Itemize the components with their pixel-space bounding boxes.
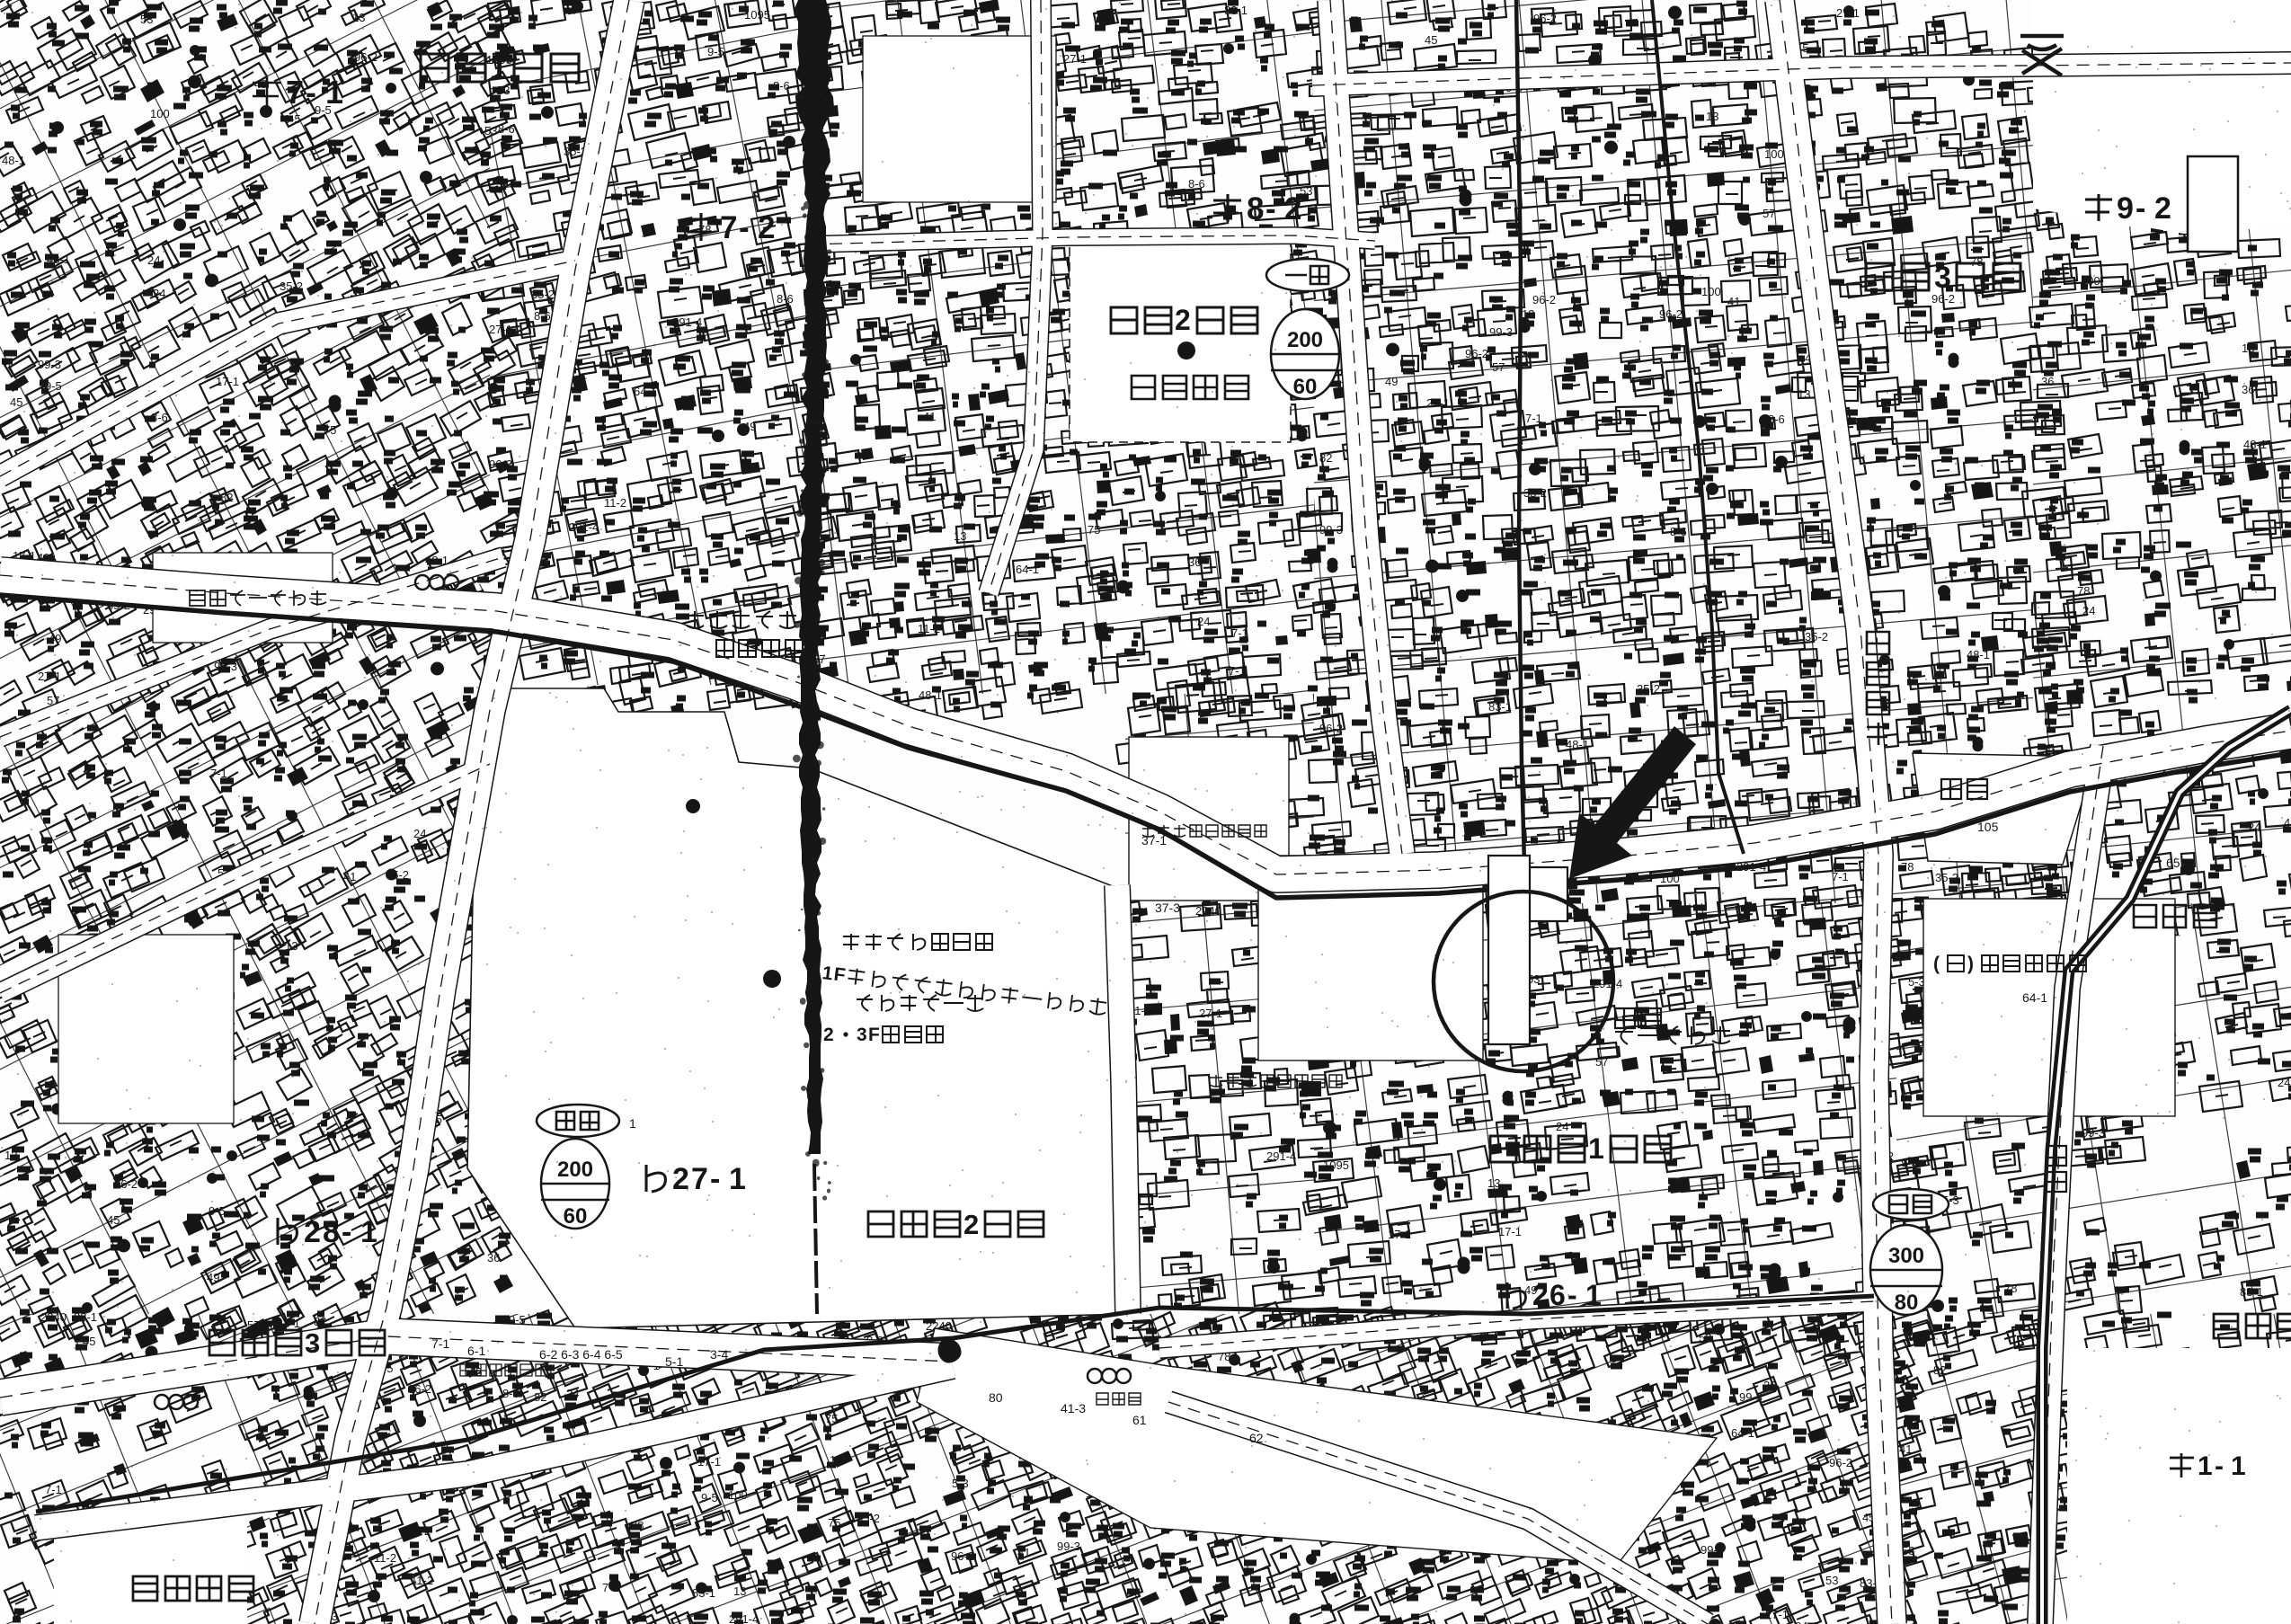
svg-text:96-2: 96-2 bbox=[1533, 12, 1557, 25]
svg-text:27-1: 27-1 bbox=[1836, 6, 1860, 20]
svg-text:37-3: 37-3 bbox=[1155, 901, 1180, 915]
svg-text:5-3: 5-3 bbox=[1908, 975, 1925, 989]
svg-text:9-5: 9-5 bbox=[1901, 1156, 1918, 1169]
svg-text:24: 24 bbox=[566, 1387, 579, 1400]
svg-text:7: 7 bbox=[720, 210, 737, 245]
svg-text:41: 41 bbox=[2284, 816, 2291, 830]
svg-text:41: 41 bbox=[343, 870, 356, 883]
svg-text:35-2: 35-2 bbox=[386, 868, 409, 882]
svg-text:13: 13 bbox=[4, 1149, 17, 1162]
svg-text:96-2: 96-2 bbox=[1465, 347, 1488, 360]
svg-text:2: 2 bbox=[1284, 191, 1301, 226]
svg-text:24: 24 bbox=[153, 287, 165, 300]
svg-text:64-1: 64-1 bbox=[634, 385, 657, 398]
svg-text:53: 53 bbox=[1699, 1331, 1711, 1344]
svg-text:8-6: 8-6 bbox=[502, 1387, 519, 1400]
svg-text:300: 300 bbox=[1888, 1244, 1924, 1268]
svg-text:8: 8 bbox=[1247, 191, 1264, 226]
svg-text:35-2: 35-2 bbox=[1935, 871, 1958, 884]
svg-text:35-2: 35-2 bbox=[857, 1512, 880, 1525]
svg-text:41: 41 bbox=[1727, 295, 1740, 308]
svg-text:99-3: 99-3 bbox=[2082, 1126, 2105, 1140]
svg-text:5-3: 5-3 bbox=[952, 1477, 969, 1490]
svg-text:75: 75 bbox=[825, 1412, 838, 1425]
svg-text:11-2: 11-2 bbox=[918, 622, 940, 635]
svg-text:13: 13 bbox=[1522, 307, 1534, 321]
svg-text:): ) bbox=[1967, 954, 1974, 974]
svg-text:2: 2 bbox=[304, 1215, 321, 1249]
svg-text:-: - bbox=[739, 210, 750, 245]
svg-text:36: 36 bbox=[1763, 1379, 1776, 1392]
svg-text:7-1: 7-1 bbox=[1832, 870, 1849, 883]
svg-text:62: 62 bbox=[1249, 1431, 1264, 1445]
svg-text:9-5: 9-5 bbox=[284, 112, 301, 126]
svg-text:78: 78 bbox=[631, 1519, 644, 1532]
svg-text:13: 13 bbox=[1706, 110, 1718, 123]
svg-text:2: 2 bbox=[758, 210, 775, 245]
svg-text:2240: 2240 bbox=[1195, 904, 1221, 918]
svg-text:48-1: 48-1 bbox=[1566, 738, 1589, 751]
svg-text:1: 1 bbox=[729, 1162, 746, 1196]
svg-text:(: ( bbox=[1933, 954, 1940, 974]
svg-text:1: 1 bbox=[629, 1116, 636, 1131]
svg-text:24: 24 bbox=[2248, 821, 2260, 834]
svg-text:7-1: 7-1 bbox=[1231, 626, 1248, 640]
svg-text:36: 36 bbox=[487, 1251, 500, 1265]
svg-text:11-2: 11-2 bbox=[411, 1574, 433, 1587]
svg-text:7: 7 bbox=[691, 1162, 708, 1196]
svg-text:75: 75 bbox=[828, 1516, 840, 1530]
svg-text:1: 1 bbox=[1585, 1279, 1602, 1311]
svg-text:49: 49 bbox=[49, 632, 61, 645]
svg-text:57: 57 bbox=[1763, 207, 1775, 220]
svg-text:27-1: 27-1 bbox=[1426, 396, 1450, 410]
svg-text:13: 13 bbox=[954, 529, 966, 543]
svg-text:48-1: 48-1 bbox=[2243, 438, 2267, 451]
svg-text:49: 49 bbox=[1385, 375, 1398, 388]
svg-text:83-1: 83-1 bbox=[692, 1586, 715, 1600]
svg-text:24: 24 bbox=[2278, 1076, 2290, 1089]
svg-text:7-1: 7-1 bbox=[431, 1336, 449, 1351]
svg-text:48-1: 48-1 bbox=[1967, 648, 1990, 661]
svg-text:36: 36 bbox=[2242, 383, 2254, 396]
svg-text:60: 60 bbox=[1293, 375, 1318, 399]
svg-text:49: 49 bbox=[743, 420, 756, 433]
svg-text:48-1: 48-1 bbox=[2, 154, 25, 167]
svg-text:96-2: 96-2 bbox=[354, 50, 377, 64]
svg-text:2: 2 bbox=[1175, 304, 1191, 336]
svg-text:9-5: 9-5 bbox=[209, 1204, 226, 1218]
svg-text:105: 105 bbox=[1977, 820, 1999, 834]
svg-text:41: 41 bbox=[1017, 1546, 1030, 1559]
svg-text:24: 24 bbox=[2082, 604, 2095, 617]
svg-text:8-6: 8-6 bbox=[777, 292, 794, 306]
svg-text:24: 24 bbox=[413, 827, 426, 840]
svg-text:53: 53 bbox=[140, 13, 153, 26]
svg-text:100: 100 bbox=[1701, 285, 1721, 298]
svg-text:11-2: 11-2 bbox=[408, 1524, 431, 1538]
svg-text:45: 45 bbox=[83, 1335, 95, 1348]
svg-text:64-1: 64-1 bbox=[1795, 1620, 1818, 1624]
svg-text:41: 41 bbox=[923, 410, 936, 423]
svg-text:13: 13 bbox=[352, 11, 365, 24]
svg-text:75: 75 bbox=[324, 423, 336, 437]
svg-text:82: 82 bbox=[1933, 1363, 1946, 1377]
svg-text:13: 13 bbox=[1487, 1176, 1500, 1190]
svg-text:-: - bbox=[2215, 1451, 2224, 1481]
svg-text:35-2: 35-2 bbox=[1805, 630, 1828, 643]
svg-text:99-3: 99-3 bbox=[1057, 1540, 1080, 1553]
svg-text:48-1: 48-1 bbox=[919, 688, 942, 702]
svg-text:-: - bbox=[2136, 191, 2145, 226]
svg-text:27-1: 27-1 bbox=[1063, 52, 1087, 66]
svg-text:291-4: 291-4 bbox=[672, 315, 702, 329]
svg-text:45: 45 bbox=[1425, 33, 1437, 47]
svg-text:57: 57 bbox=[1595, 1055, 1608, 1069]
svg-text:17-1: 17-1 bbox=[216, 375, 239, 388]
svg-text:13: 13 bbox=[2242, 342, 2254, 355]
svg-text:9-5: 9-5 bbox=[45, 379, 62, 393]
svg-text:45: 45 bbox=[469, 1365, 482, 1379]
svg-text:1: 1 bbox=[360, 1215, 377, 1249]
svg-text:13: 13 bbox=[830, 1453, 842, 1467]
svg-text:65: 65 bbox=[2166, 856, 2180, 870]
svg-text:5-1: 5-1 bbox=[665, 1354, 683, 1369]
svg-text:36: 36 bbox=[2041, 375, 2054, 388]
svg-text:6-2 6-3 6-4 6-5: 6-2 6-3 6-4 6-5 bbox=[539, 1347, 623, 1362]
svg-text:2: 2 bbox=[1532, 1279, 1549, 1311]
svg-text:48-1: 48-1 bbox=[47, 253, 70, 266]
svg-text:291-4: 291-4 bbox=[729, 1612, 759, 1624]
svg-text:8: 8 bbox=[323, 1215, 340, 1249]
svg-text:99-3: 99-3 bbox=[1319, 523, 1343, 537]
svg-text:1: 1 bbox=[325, 74, 343, 111]
svg-text:-: - bbox=[1567, 1279, 1577, 1311]
svg-text:8-6: 8-6 bbox=[1188, 177, 1205, 191]
svg-text:9-5: 9-5 bbox=[707, 45, 724, 58]
svg-text:99-3: 99-3 bbox=[1739, 1390, 1763, 1404]
svg-text:24: 24 bbox=[1556, 1120, 1568, 1133]
svg-text:2: 2 bbox=[672, 1162, 689, 1196]
svg-text:82: 82 bbox=[534, 1390, 546, 1404]
svg-text:35-2: 35-2 bbox=[280, 280, 303, 293]
svg-text:2: 2 bbox=[2154, 191, 2171, 226]
svg-text:-: - bbox=[1265, 191, 1276, 226]
svg-text:96-2: 96-2 bbox=[1829, 1456, 1852, 1469]
svg-text:6: 6 bbox=[1550, 1279, 1566, 1311]
svg-text:57: 57 bbox=[1492, 360, 1505, 374]
svg-text:96-2: 96-2 bbox=[951, 1549, 974, 1563]
svg-text:49: 49 bbox=[207, 1271, 219, 1284]
svg-text:45: 45 bbox=[107, 1213, 120, 1227]
svg-text:6-1: 6-1 bbox=[467, 1344, 485, 1358]
svg-text:8-6: 8-6 bbox=[498, 122, 515, 136]
svg-text:1: 1 bbox=[2231, 1451, 2246, 1481]
svg-text:96-2: 96-2 bbox=[114, 1177, 138, 1191]
svg-text:27-1: 27-1 bbox=[1199, 1007, 1222, 1020]
svg-text:7-1: 7-1 bbox=[602, 1581, 619, 1594]
svg-text:7-1: 7-1 bbox=[210, 767, 227, 780]
svg-text:F: F bbox=[868, 1025, 880, 1045]
svg-text:1095: 1095 bbox=[1323, 1158, 1349, 1172]
svg-text:37-1: 37-1 bbox=[1141, 833, 1167, 847]
svg-text:24: 24 bbox=[147, 253, 160, 267]
svg-text:35-2: 35-2 bbox=[1523, 486, 1547, 500]
svg-text:2: 2 bbox=[823, 1025, 834, 1045]
svg-text:96-2: 96-2 bbox=[1659, 307, 1683, 321]
svg-text:99-3: 99-3 bbox=[214, 660, 237, 673]
svg-text:82: 82 bbox=[1319, 451, 1332, 465]
svg-text:17-1: 17-1 bbox=[697, 1455, 721, 1469]
svg-text:99-3: 99-3 bbox=[38, 358, 61, 371]
svg-text:80: 80 bbox=[989, 1390, 1003, 1405]
svg-text:78: 78 bbox=[2077, 584, 2090, 598]
svg-text:200: 200 bbox=[557, 1158, 593, 1182]
svg-text:83-1: 83-1 bbox=[1224, 4, 1248, 17]
svg-text:7-1: 7-1 bbox=[1525, 412, 1542, 425]
svg-text:8-6: 8-6 bbox=[534, 309, 551, 323]
svg-text:8-6: 8-6 bbox=[151, 411, 168, 424]
svg-text:13: 13 bbox=[285, 939, 297, 953]
svg-text:3: 3 bbox=[305, 1327, 320, 1359]
svg-text:100: 100 bbox=[728, 1488, 748, 1502]
svg-text:53: 53 bbox=[1825, 1574, 1838, 1587]
svg-text:7-1: 7-1 bbox=[45, 1483, 62, 1496]
svg-text:2: 2 bbox=[963, 1209, 979, 1240]
svg-text:100: 100 bbox=[1764, 147, 1784, 161]
svg-text:27-1: 27-1 bbox=[1765, 1608, 1789, 1621]
svg-text:64-1: 64-1 bbox=[1016, 563, 1039, 576]
svg-text:3: 3 bbox=[857, 1025, 867, 1045]
svg-text:75: 75 bbox=[1088, 523, 1100, 537]
svg-text:96-2: 96-2 bbox=[1532, 293, 1556, 306]
svg-text:291-4: 291-4 bbox=[1266, 1149, 1296, 1163]
svg-text:100: 100 bbox=[2081, 274, 2100, 288]
svg-text:11-2: 11-2 bbox=[374, 1551, 396, 1565]
svg-text:24: 24 bbox=[1197, 615, 1210, 628]
svg-text:78: 78 bbox=[2004, 1282, 2017, 1295]
svg-text:60: 60 bbox=[564, 1204, 588, 1229]
svg-text:200: 200 bbox=[1287, 328, 1323, 352]
svg-text:-: - bbox=[710, 1162, 720, 1196]
svg-text:83-1: 83-1 bbox=[1488, 700, 1512, 714]
svg-text:3: 3 bbox=[1934, 261, 1951, 295]
svg-text:96-2: 96-2 bbox=[408, 1382, 431, 1396]
svg-text:27-1: 27-1 bbox=[38, 670, 61, 683]
svg-text:9-5: 9-5 bbox=[701, 1491, 718, 1504]
svg-text:35-2: 35-2 bbox=[1637, 682, 1660, 696]
svg-text:-: - bbox=[342, 1215, 351, 1249]
svg-text:17-1: 17-1 bbox=[1388, 1228, 1411, 1241]
svg-text:99-3: 99-3 bbox=[1700, 1543, 1724, 1557]
svg-text:1: 1 bbox=[1588, 1132, 1604, 1165]
svg-text:35-2: 35-2 bbox=[531, 288, 555, 301]
svg-text:83-1: 83-1 bbox=[2240, 1285, 2263, 1299]
svg-text:49: 49 bbox=[254, 77, 267, 91]
svg-text:64-1: 64-1 bbox=[1731, 1426, 1754, 1440]
svg-text:8-6: 8-6 bbox=[1670, 525, 1687, 538]
svg-text:36: 36 bbox=[1188, 555, 1201, 569]
svg-text:64-1: 64-1 bbox=[2022, 990, 2047, 1005]
svg-text:1: 1 bbox=[2198, 1451, 2213, 1481]
svg-text:7-1: 7-1 bbox=[1229, 664, 1246, 678]
svg-text:291-4: 291-4 bbox=[569, 520, 599, 534]
svg-text:1: 1 bbox=[490, 51, 507, 86]
svg-text:80: 80 bbox=[1895, 1291, 1919, 1315]
svg-text:100: 100 bbox=[150, 107, 170, 120]
svg-text:41-3: 41-3 bbox=[1061, 1401, 1086, 1415]
svg-text:78: 78 bbox=[1901, 860, 1914, 874]
svg-text:82: 82 bbox=[220, 491, 233, 504]
svg-text:61: 61 bbox=[1132, 1413, 1147, 1427]
svg-text:9: 9 bbox=[2117, 191, 2134, 226]
svg-text:1095: 1095 bbox=[744, 8, 770, 22]
svg-text:99-3: 99-3 bbox=[1489, 325, 1513, 339]
svg-text:13: 13 bbox=[733, 1584, 746, 1598]
svg-text:3-4: 3-4 bbox=[710, 1347, 728, 1362]
svg-text:-: - bbox=[306, 74, 316, 111]
svg-text:8-6: 8-6 bbox=[1768, 413, 1785, 426]
svg-text:7: 7 bbox=[286, 74, 304, 111]
svg-text:45: 45 bbox=[10, 395, 22, 409]
